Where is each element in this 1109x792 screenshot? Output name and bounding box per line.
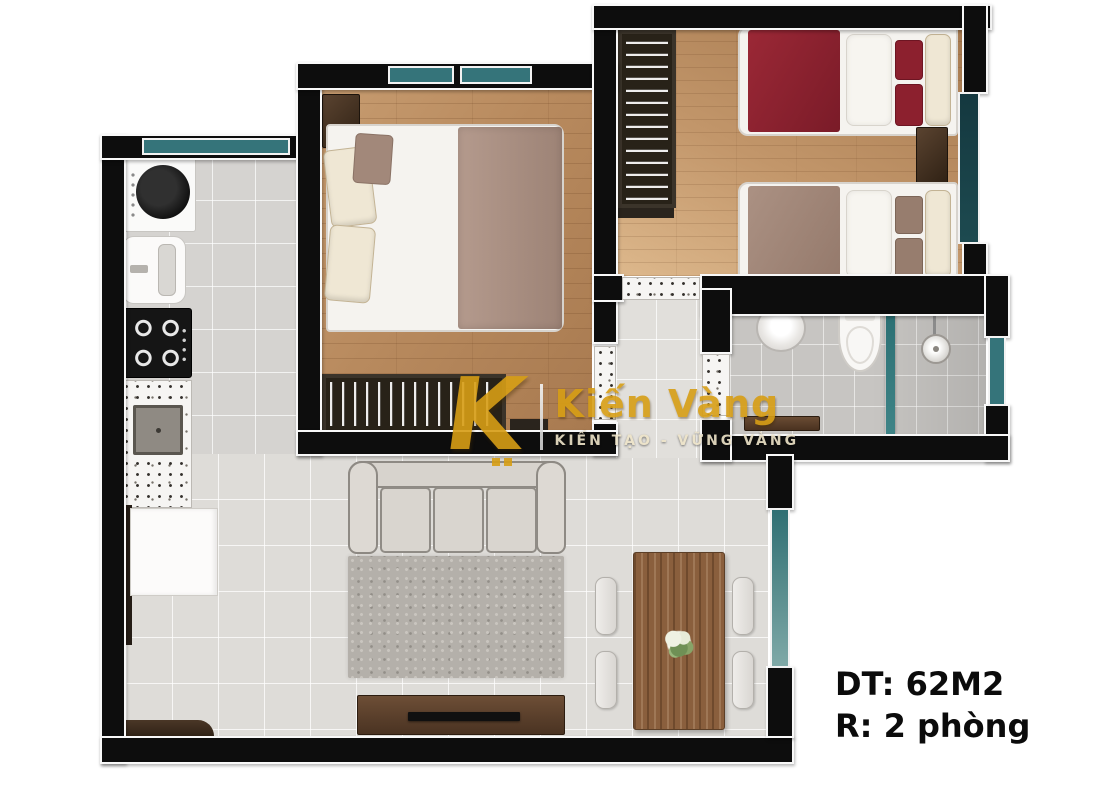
bedroom2-nightstand	[916, 127, 948, 185]
bed-red-pillow	[846, 34, 892, 126]
master-window-2	[460, 66, 532, 84]
bed-red-blanket	[748, 30, 840, 132]
tv-screen	[408, 712, 520, 721]
watermark: K Kiến Vàng KIẾN TẠO - VỮNG VÀNG	[446, 374, 799, 456]
master-window-1	[388, 66, 454, 84]
area-label: DT: 62M2	[835, 663, 1030, 705]
watermark-text-block: Kiến Vàng KIẾN TẠO - VỮNG VÀNG	[555, 382, 800, 449]
shower-glass-partition	[886, 304, 895, 434]
bedroom2-clothes-rack	[618, 30, 676, 208]
kitchen-sink-unit	[122, 236, 186, 304]
bed-taupe-cushion-1	[895, 196, 923, 234]
bed-taupe-cushion-2	[895, 238, 923, 278]
tv-console	[357, 695, 565, 735]
master-cushion	[352, 133, 393, 186]
wall-bathroom-left-upper	[700, 288, 732, 354]
hangers-icon	[626, 38, 668, 200]
sofa-arm-right	[536, 461, 566, 554]
wall-bedroom2-top	[592, 4, 992, 30]
sofa-arm-left	[348, 461, 378, 554]
bed-red-cushion-2	[895, 84, 923, 126]
bedroom2-window	[958, 92, 980, 244]
entry-bench	[116, 720, 214, 737]
floor-plan-canvas: K Kiến Vàng KIẾN TẠO - VỮNG VÀNG DT: 62M…	[0, 0, 1109, 792]
wall-bedroom2-bottom-left	[592, 274, 624, 302]
shower-head	[921, 334, 951, 364]
wall-master-top	[296, 62, 618, 90]
bathroom-window	[988, 336, 1006, 406]
dining-chair-2	[595, 651, 617, 709]
wall-bottom-outer	[100, 736, 794, 764]
sofa-seat-2	[433, 487, 484, 553]
brand-name: Kiến Vàng	[555, 382, 800, 426]
watermark-divider	[540, 384, 543, 450]
sofa-seat-1	[380, 487, 431, 553]
kitchen-cabinet	[130, 508, 218, 596]
brand-dots-icon	[492, 458, 500, 466]
counter-sink	[133, 405, 183, 455]
area-rug	[348, 556, 564, 678]
wall-bedroom2-bathroom-shared	[700, 274, 990, 316]
bed-taupe-bolster	[925, 190, 951, 278]
bed-red-cushion-1	[895, 40, 923, 80]
bed-taupe-blanket	[748, 186, 840, 284]
balcony-glass-door	[770, 508, 790, 668]
kitchen-window	[142, 138, 290, 155]
bed-red-bolster	[925, 34, 951, 126]
dining-chair-4	[732, 651, 754, 709]
brand-tagline: KIẾN TẠO - VỮNG VÀNG	[555, 433, 800, 449]
dining-chair-1	[595, 577, 617, 635]
wall-bathroom-right-upper	[984, 274, 1010, 338]
wall-bedroom2-right-upper	[962, 4, 988, 94]
rooms-label: R: 2 phòng	[835, 705, 1030, 747]
wall-living-right-upper	[766, 454, 794, 510]
gas-stove	[122, 308, 192, 378]
flower-centerpiece	[660, 622, 698, 664]
wall-living-right-lower	[766, 666, 794, 738]
brand-logo: K	[446, 374, 524, 456]
wall-left-outer	[100, 134, 126, 764]
bedroom2-shelf	[618, 208, 674, 218]
master-pillow-2	[324, 224, 376, 304]
master-bed-blanket	[458, 127, 562, 329]
dining-chair-3	[732, 577, 754, 635]
washing-machine	[124, 156, 196, 232]
wall-master-left	[296, 62, 322, 456]
brand-k-icon: K	[440, 374, 529, 456]
kitchen-counter	[120, 380, 192, 508]
sofa-seat-3	[486, 487, 537, 553]
bedroom2-door-threshold	[622, 277, 700, 300]
plan-annotation: DT: 62M2 R: 2 phòng	[835, 663, 1030, 747]
bed-taupe-pillow	[846, 190, 892, 278]
